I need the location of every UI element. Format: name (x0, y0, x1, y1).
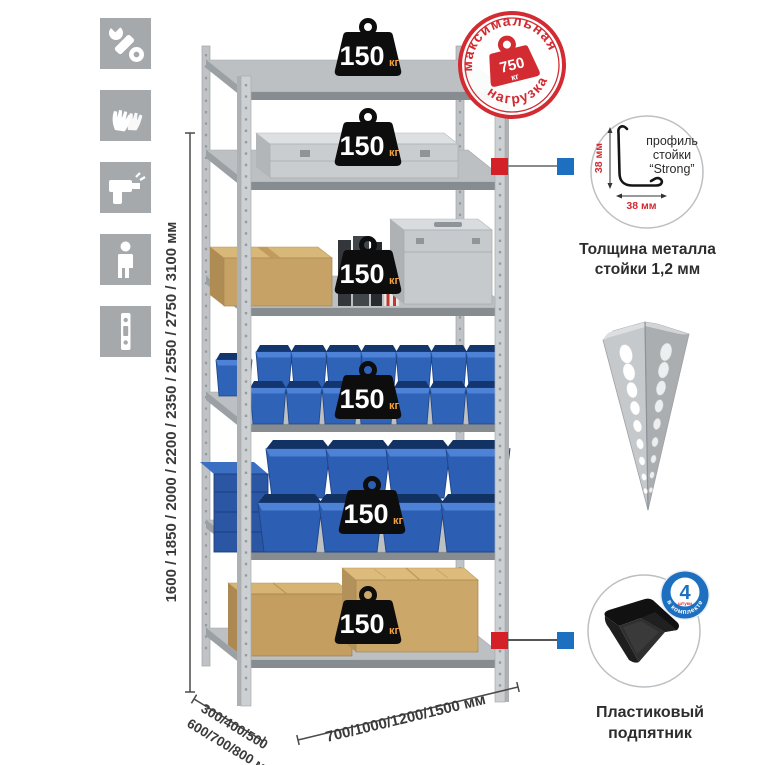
post-profile-image (593, 310, 697, 528)
profile-dim-vertical: 38 мм (593, 143, 605, 173)
svg-text:150: 150 (343, 499, 388, 529)
width-dimension-label: 700/1000/1200/1500 мм (324, 691, 487, 746)
profile-caption: Толщина металла стойки 1,2 мм (570, 240, 725, 281)
blue-marker-bottom (557, 632, 574, 649)
product-infographic: 1600 / 1850 / 2000 / 2200 / 2350 / 2550 … (0, 0, 765, 765)
foot-connector (491, 632, 574, 649)
profile-connector (491, 158, 574, 175)
count-badge: 4 штуки в комплекте (659, 569, 711, 621)
shelf-load-badge-5: 150 кг (324, 476, 420, 536)
blue-marker-top (557, 158, 574, 175)
svg-text:кг: кг (389, 275, 400, 287)
svg-text:150: 150 (339, 609, 384, 639)
svg-text:150: 150 (339, 259, 384, 289)
profile-label-1: профиль (646, 134, 698, 148)
profile-label-3: “Strong” (649, 162, 694, 176)
shelf-load-badge-2: 150 кг (320, 108, 416, 168)
svg-text:150: 150 (339, 41, 384, 71)
shelf-load-badge-6: 150 кг (320, 586, 416, 646)
profile-dim-horizontal: 38 мм (626, 200, 656, 212)
svg-text:кг: кг (389, 625, 400, 637)
svg-text:кг: кг (389, 57, 400, 69)
red-marker-top (491, 158, 508, 175)
profile-callout: 38 мм 38 мм профиль стойки “Strong” (587, 112, 707, 232)
cardboard-box-small (210, 247, 332, 306)
svg-text:кг: кг (389, 400, 400, 412)
height-dimension (185, 133, 195, 692)
shelf-load-badge-1: 150 кг (320, 18, 416, 78)
height-dimension-label: 1600 / 1850 / 2000 / 2200 / 2350 / 2550 … (163, 222, 180, 603)
profile-label-2: стойки (653, 148, 691, 162)
count-badge-small: штуки (678, 601, 692, 606)
svg-text:150: 150 (339, 131, 384, 161)
max-load-stamp: максимальная нагрузка 750 кг (450, 3, 574, 127)
foot-caption: Пластиковый подпятник (570, 702, 730, 744)
svg-text:150: 150 (339, 384, 384, 414)
svg-text:кг: кг (393, 515, 404, 527)
shelf-load-badge-4: 150 кг (320, 361, 416, 421)
red-marker-bottom (491, 632, 508, 649)
shelf-load-badge-3: 150 кг (320, 236, 416, 296)
svg-text:кг: кг (389, 147, 400, 159)
